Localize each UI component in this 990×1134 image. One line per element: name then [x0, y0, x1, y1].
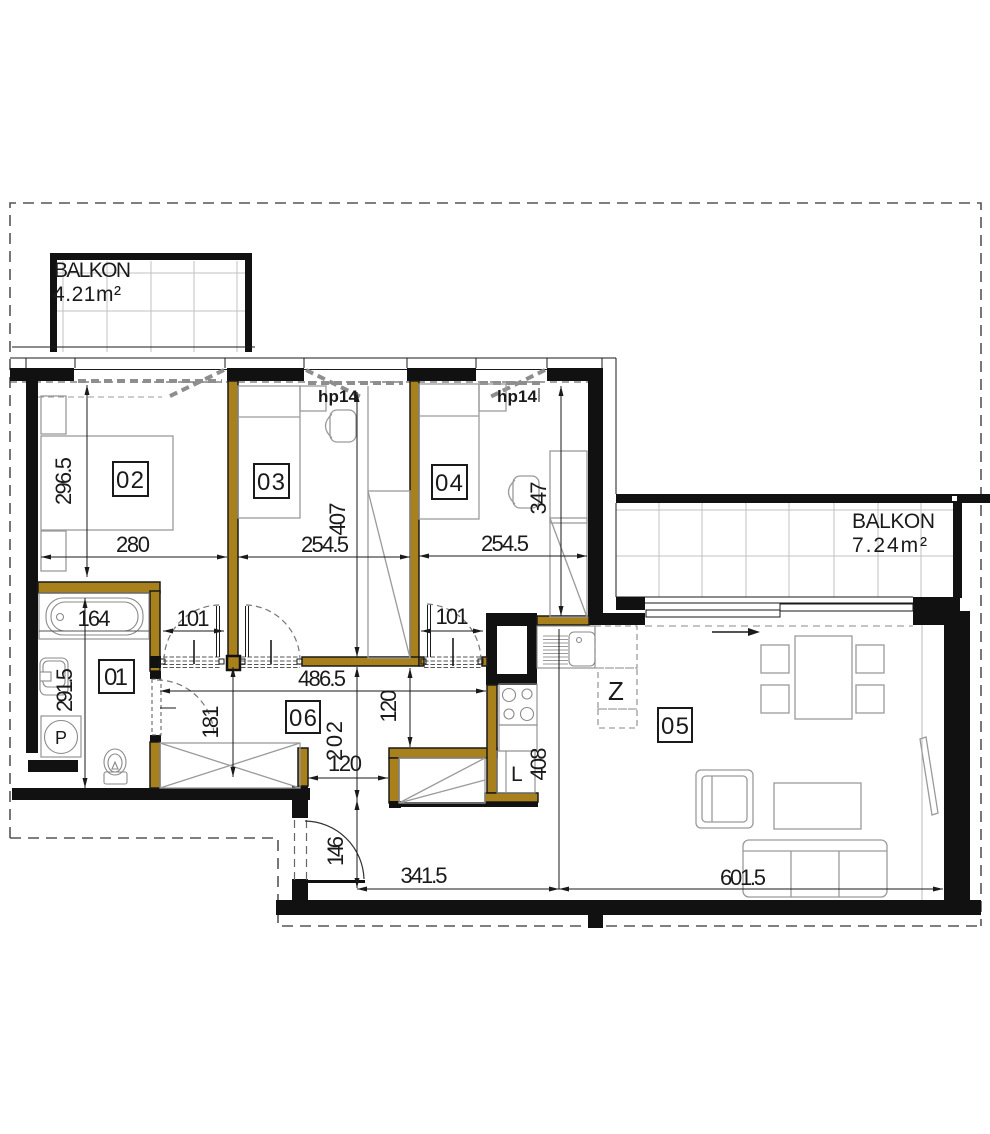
- svg-text:341.5: 341.5: [401, 863, 448, 888]
- svg-text:120: 120: [328, 751, 362, 776]
- svg-text:408: 408: [526, 748, 551, 781]
- svg-text:120: 120: [376, 690, 401, 723]
- svg-text:347: 347: [526, 482, 551, 515]
- svg-text:101: 101: [436, 604, 469, 629]
- svg-text:Z: Z: [608, 676, 624, 706]
- svg-text:164: 164: [78, 606, 111, 631]
- svg-text:4.21m²: 4.21m²: [53, 283, 121, 306]
- svg-text:280: 280: [116, 532, 150, 557]
- svg-text:01: 01: [104, 664, 128, 691]
- svg-text:02: 02: [116, 467, 144, 494]
- svg-text:hp14: hp14: [318, 387, 359, 406]
- svg-text:7.24m²: 7.24m²: [852, 534, 927, 557]
- svg-text:03: 03: [257, 469, 285, 496]
- svg-text:291.5: 291.5: [52, 668, 77, 712]
- svg-text:05: 05: [661, 713, 689, 740]
- svg-text:BALKON: BALKON: [852, 510, 935, 533]
- svg-text:BALKON: BALKON: [54, 259, 131, 282]
- svg-text:296.5: 296.5: [51, 457, 76, 505]
- svg-text:101: 101: [177, 606, 210, 631]
- svg-text:486.5: 486.5: [298, 666, 346, 691]
- svg-text:254.5: 254.5: [481, 531, 529, 556]
- svg-text:P: P: [55, 728, 67, 748]
- svg-text:06: 06: [289, 705, 317, 732]
- svg-text:601.5: 601.5: [720, 865, 766, 890]
- svg-text:hp14: hp14: [497, 387, 538, 406]
- svg-text:407: 407: [325, 503, 350, 536]
- svg-text:04: 04: [435, 470, 463, 497]
- svg-text:181: 181: [198, 706, 223, 739]
- svg-text:146: 146: [323, 836, 348, 866]
- svg-text:L: L: [511, 763, 523, 786]
